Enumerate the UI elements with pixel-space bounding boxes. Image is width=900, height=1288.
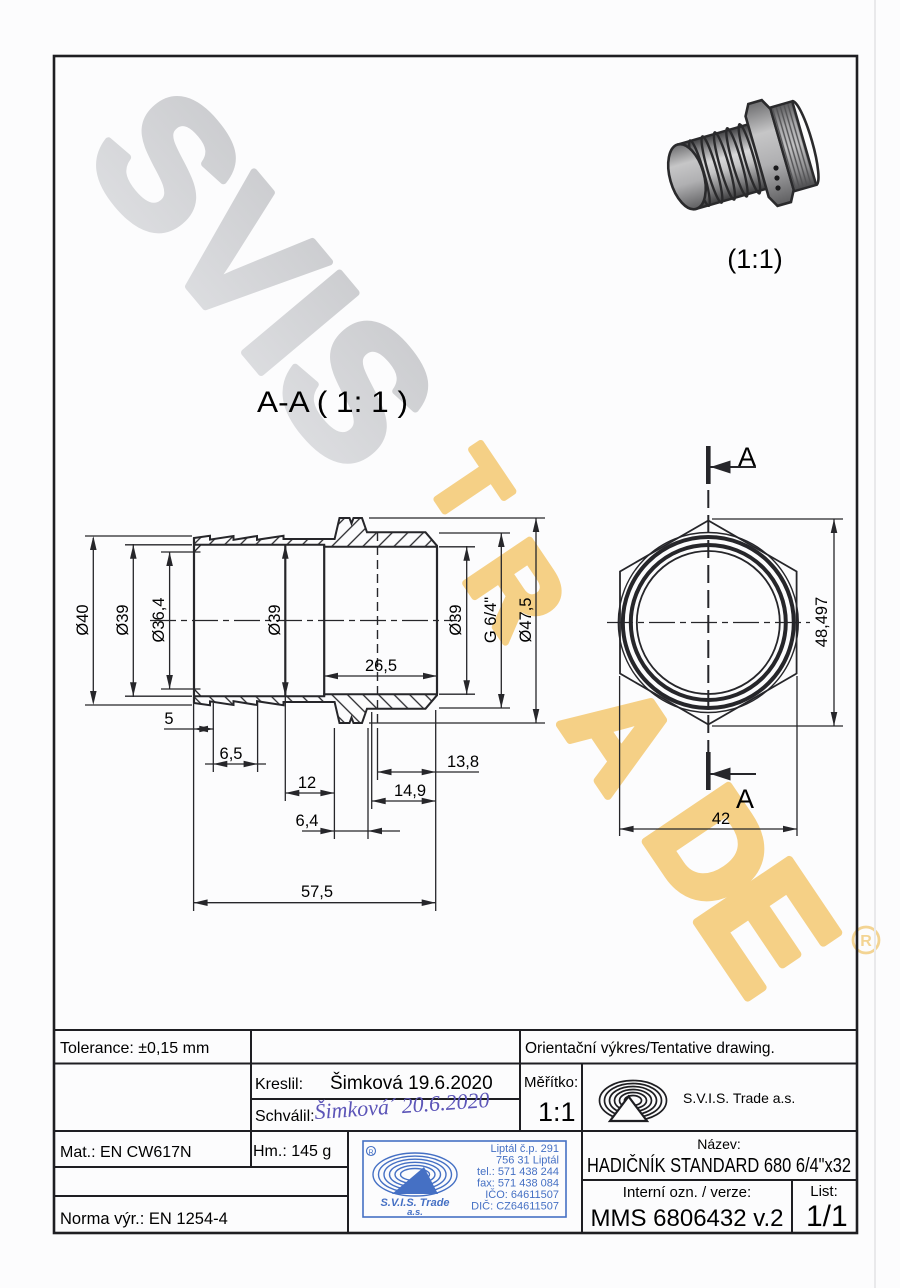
svg-text:R: R xyxy=(442,521,591,658)
svg-text:S.V.I.S. Trade a.s.: S.V.I.S. Trade a.s. xyxy=(683,1090,795,1106)
svg-text:(1:1): (1:1) xyxy=(727,244,783,274)
svg-text:MMS 6806432 v.2: MMS 6806432 v.2 xyxy=(591,1205,784,1232)
svg-text:a.s.: a.s. xyxy=(407,1207,423,1218)
svg-text:R: R xyxy=(368,1150,373,1157)
svg-text:R: R xyxy=(860,933,872,950)
svg-text:Liptál č.p. 291: Liptál č.p. 291 xyxy=(491,1143,560,1155)
svg-text:6,4: 6,4 xyxy=(296,812,319,830)
svg-text:1:1: 1:1 xyxy=(538,1097,576,1127)
svg-text:Ø39: Ø39 xyxy=(114,604,132,635)
svg-text:Ø39: Ø39 xyxy=(447,604,465,635)
svg-text:A: A xyxy=(738,442,756,472)
svg-text:1/1: 1/1 xyxy=(806,1200,848,1233)
svg-text:Název:: Název: xyxy=(697,1136,741,1152)
svg-text:13,8: 13,8 xyxy=(447,753,479,771)
svg-text:List:: List: xyxy=(810,1183,838,1200)
svg-text:5: 5 xyxy=(164,710,173,728)
svg-text:12: 12 xyxy=(298,774,316,792)
svg-text:Hm.: 145 g: Hm.: 145 g xyxy=(253,1143,331,1160)
svg-text:fax: 571 438 084: fax: 571 438 084 xyxy=(477,1178,559,1190)
svg-text:DIČ: CZ64611507: DIČ: CZ64611507 xyxy=(471,1200,559,1213)
svg-text:Orientační výkres/Tentative dr: Orientační výkres/Tentative drawing. xyxy=(525,1040,775,1057)
svg-text:Tolerance: ±0,15 mm: Tolerance: ±0,15 mm xyxy=(60,1040,209,1057)
svg-text:A: A xyxy=(736,784,754,814)
svg-text:Mat.: EN CW617N: Mat.: EN CW617N xyxy=(60,1144,192,1161)
svg-text:Schválil:: Schválil: xyxy=(255,1108,315,1125)
svg-text:6,5: 6,5 xyxy=(220,745,243,763)
svg-text:IČO: 64611507: IČO: 64611507 xyxy=(485,1188,559,1201)
svg-text:HADIČNÍK STANDARD 680 6/4"x32: HADIČNÍK STANDARD 680 6/4"x32 xyxy=(587,1154,851,1177)
svg-text:42: 42 xyxy=(712,810,730,828)
svg-text:Kreslil:: Kreslil: xyxy=(255,1076,303,1093)
svg-text:Ø47,5: Ø47,5 xyxy=(517,598,535,643)
svg-text:57,5: 57,5 xyxy=(301,883,333,901)
svg-text:G 6/4": G 6/4" xyxy=(482,597,500,643)
svg-text:T: T xyxy=(407,430,532,541)
svg-text:Interní ozn. / verze:: Interní ozn. / verze: xyxy=(623,1184,751,1201)
svg-text:14,9: 14,9 xyxy=(394,782,426,800)
svg-text:48,497: 48,497 xyxy=(813,597,831,647)
svg-text:Ø39: Ø39 xyxy=(266,604,284,635)
svg-text:Ø40: Ø40 xyxy=(74,604,92,635)
svg-text:26,5: 26,5 xyxy=(365,657,397,675)
svg-text:Ø36,4: Ø36,4 xyxy=(150,598,168,643)
svg-text:Měřítko:: Měřítko: xyxy=(524,1074,578,1091)
svg-text:Norma výr.: EN 1254-4: Norma výr.: EN 1254-4 xyxy=(60,1210,228,1228)
svg-text:tel.: 571 438 244: tel.: 571 438 244 xyxy=(477,1166,559,1178)
svg-text:A-A ( 1: 1 ): A-A ( 1: 1 ) xyxy=(257,386,408,419)
svg-text:756 31 Liptál: 756 31 Liptál xyxy=(496,1155,559,1167)
